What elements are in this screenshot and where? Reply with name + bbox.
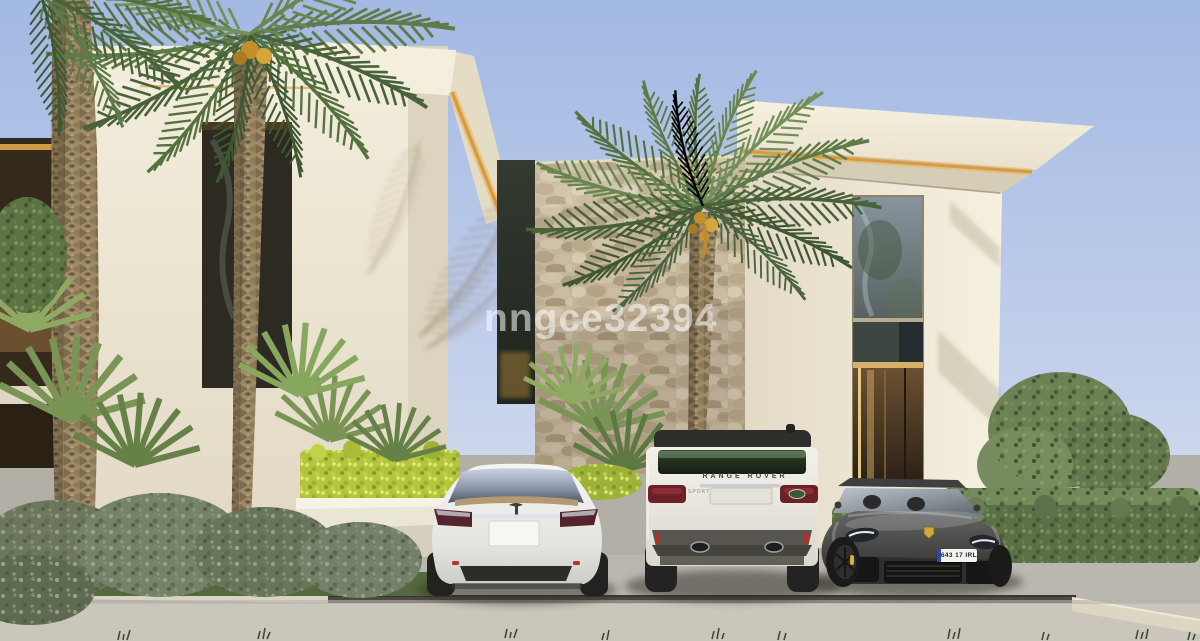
- sport-badge-text: SPORT: [688, 489, 710, 495]
- tesla-plate: [489, 521, 539, 546]
- rr-taillight-left: [648, 485, 686, 503]
- yellow-brake-caliper: [850, 555, 854, 565]
- tesla-car[interactable]: [427, 464, 608, 596]
- rr-exhaust-right: [765, 542, 783, 552]
- watermark-text: nngce32394: [484, 297, 717, 341]
- rr-plate-recess: [710, 488, 772, 504]
- tesla-diffuser: [460, 566, 572, 581]
- porsche-plate-text: 643 17 IRL: [941, 552, 977, 559]
- entrance-door[interactable]: [853, 362, 923, 482]
- villa-render-scene: nngce32394 RANGE ROVER SPORT 643 17 IRL: [0, 0, 1200, 641]
- range-rover-badge-text: RANGE ROVER: [700, 473, 790, 480]
- tesla-taillight-left: [434, 509, 472, 527]
- rr-exhaust-left: [691, 542, 709, 552]
- porsche-license-plate: 643 17 IRL: [937, 549, 977, 562]
- tesla-taillight-right: [560, 509, 598, 527]
- porsche-wheel-left: [826, 537, 860, 587]
- porsche-wheel-right: [988, 545, 1012, 587]
- land-rover-badge-icon: [789, 490, 805, 499]
